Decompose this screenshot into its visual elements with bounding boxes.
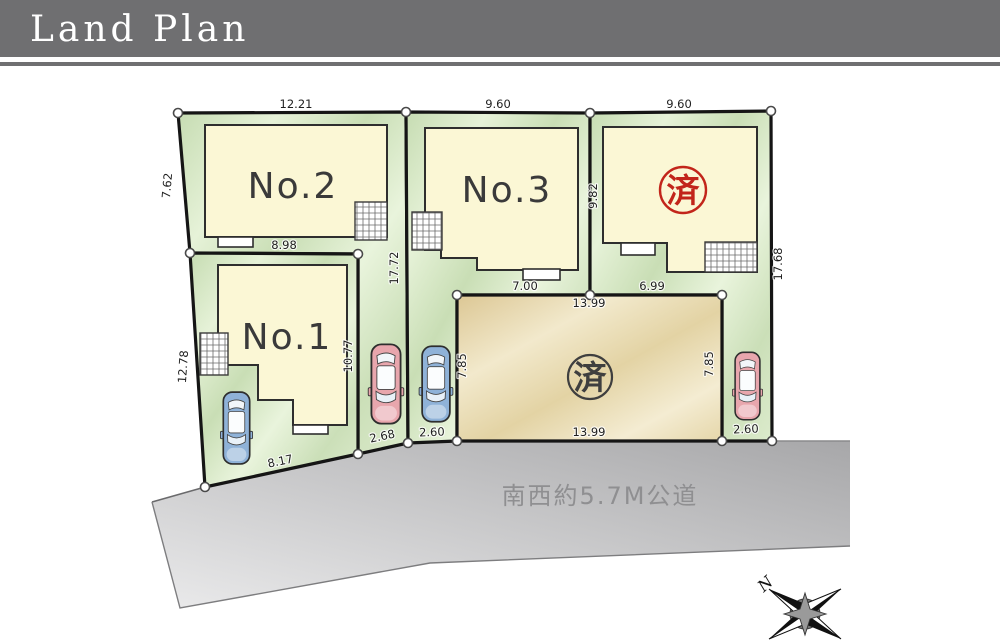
corner-marker xyxy=(453,291,462,300)
car-blue-no1-icon xyxy=(220,392,252,464)
hatch-no2 xyxy=(355,202,387,240)
car-blue-no3-driveway-icon xyxy=(419,346,453,421)
corner-marker xyxy=(186,249,195,258)
lot-no3-label: No.3 xyxy=(462,170,553,211)
corner-marker xyxy=(453,437,462,446)
land-plan-canvas: 12.21 9.60 9.60 7.62 8.98 17.72 10.77 2.… xyxy=(0,0,1000,642)
road-label: 南西約5.7M公道 xyxy=(502,482,699,510)
corner-marker xyxy=(586,109,595,118)
dim-east-right: 17.68 xyxy=(771,248,785,281)
corner-marker xyxy=(174,109,183,118)
hatch-no3 xyxy=(412,212,442,250)
dim-no3-top: 9.60 xyxy=(485,97,511,111)
corner-marker xyxy=(718,437,727,446)
car-pink-east-driveway-icon xyxy=(732,352,762,419)
corner-marker xyxy=(404,439,413,448)
corner-marker xyxy=(354,450,363,459)
dim-east-left: 9.82 xyxy=(586,183,600,209)
dim-no1-left: 12.78 xyxy=(175,350,191,384)
car-pink-no2-driveway-icon xyxy=(368,344,404,423)
sold-stamp-center-text: 済 xyxy=(574,358,608,397)
dim-no2-right: 17.72 xyxy=(387,252,401,285)
dim-east-top: 9.60 xyxy=(666,97,692,111)
page-title: Land Plan xyxy=(0,0,1000,60)
land-plan-page: 12.21 9.60 9.60 7.62 8.98 17.72 10.77 2.… xyxy=(0,0,1000,642)
dim-no3-bottom: 7.00 xyxy=(512,279,538,293)
dim-center-top: 13.99 xyxy=(573,296,606,310)
dim-center-right: 7.85 xyxy=(702,351,716,377)
corner-marker xyxy=(718,291,727,300)
dim-no2-driveway: 10.77 xyxy=(341,340,355,373)
dim-no3-frontage: 2.60 xyxy=(419,425,445,440)
porch-east xyxy=(621,243,655,255)
porch-no1 xyxy=(293,425,328,434)
porch-no2 xyxy=(218,237,253,247)
hatch-no1 xyxy=(200,333,228,375)
header-bar: Land Plan xyxy=(0,0,1000,57)
corner-marker xyxy=(768,437,777,446)
dim-no2-top: 12.21 xyxy=(280,97,313,111)
corner-marker xyxy=(201,483,210,492)
lot-no2-label: No.2 xyxy=(248,166,339,207)
header-divider xyxy=(0,62,1000,66)
corner-marker xyxy=(402,108,411,117)
dim-center-left: 7.85 xyxy=(455,353,469,379)
corner-marker xyxy=(767,107,776,116)
compass-rose: N xyxy=(753,571,841,639)
dim-center-bottom: 13.99 xyxy=(573,425,606,439)
hatch-east xyxy=(705,242,757,272)
sold-stamp-east-text: 済 xyxy=(667,171,701,210)
corner-marker xyxy=(354,250,363,259)
dim-east-bottom: 6.99 xyxy=(639,279,665,293)
dim-east-frontage: 2.60 xyxy=(733,422,759,437)
lot-no1-label: No.1 xyxy=(242,317,333,358)
dim-no2-left: 7.62 xyxy=(159,172,175,199)
dim-no2-bottom: 8.98 xyxy=(271,238,297,252)
